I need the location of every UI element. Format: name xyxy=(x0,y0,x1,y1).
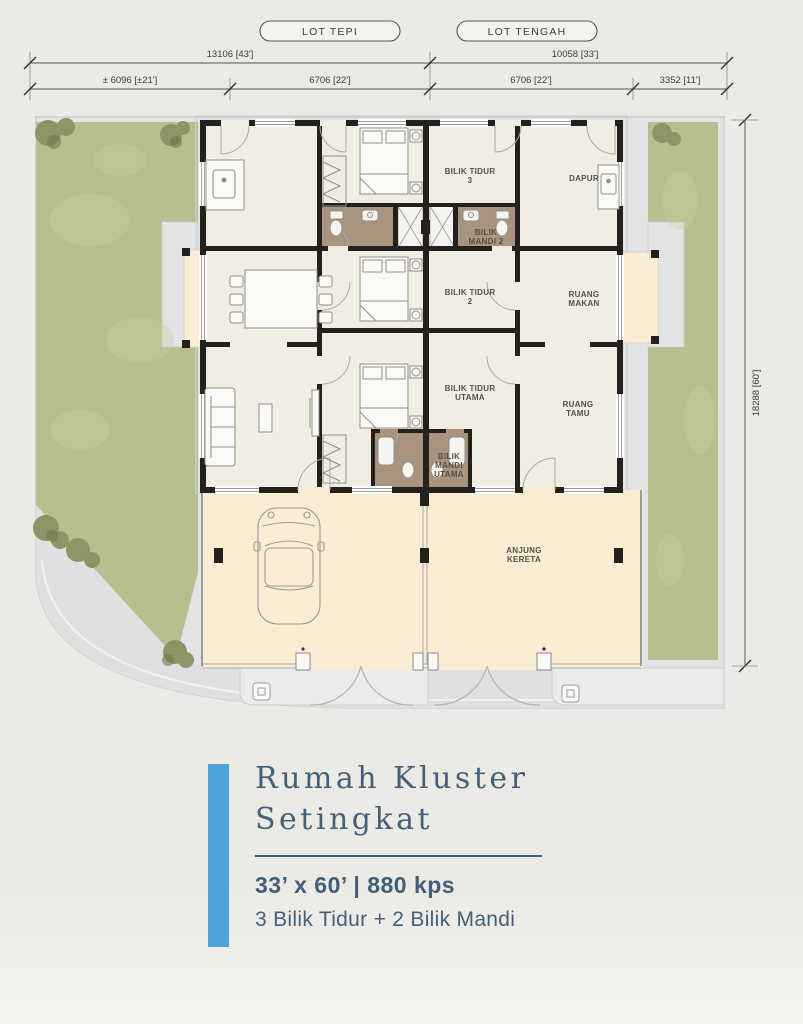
kitchen-counter xyxy=(206,160,244,210)
coffee-table xyxy=(259,404,272,432)
utility-meter-box-right xyxy=(562,685,579,702)
kitchen-counter xyxy=(598,165,619,209)
lot-tengah-label: LOT TENGAH xyxy=(488,26,567,38)
svg-text:UTAMA: UTAMA xyxy=(434,470,464,479)
plan-spec: 33’ x 60’ | 880 kps xyxy=(255,872,455,899)
patio-right xyxy=(620,250,659,344)
plan-title: Rumah Kluster Setingkat xyxy=(255,758,675,840)
svg-text:RUANG: RUANG xyxy=(563,400,594,409)
room-dapur: DAPUR xyxy=(569,174,599,183)
svg-text:MANDI: MANDI xyxy=(435,461,463,470)
air-well-right xyxy=(430,206,455,248)
accent-bar xyxy=(208,764,229,947)
svg-text:BILIK: BILIK xyxy=(475,228,497,237)
plan-features: 3 Bilik Tidur + 2 Bilik Mandi xyxy=(255,908,515,932)
dim-3352: 3352 [11'] xyxy=(660,75,701,86)
dimension-labels-top: 13106 [43'] 10058 [33'] ± 6096 [±21'] 67… xyxy=(103,49,701,86)
title-divider xyxy=(255,855,542,857)
svg-text:MAKAN: MAKAN xyxy=(568,299,599,308)
svg-text:BILIK: BILIK xyxy=(438,452,460,461)
dim-6096: ± 6096 [±21'] xyxy=(103,75,158,86)
room-ruang-makan: RUANG MAKAN xyxy=(568,290,599,308)
room-anjung-kereta: ANJUNG KERETA xyxy=(506,546,542,564)
room-bilik-mandi-utama: BILIK MANDI UTAMA xyxy=(434,452,464,479)
flyer-page: LOT TEPI LOT TENGAH 13106 [43'] 10058 [3… xyxy=(0,0,803,1024)
svg-text:BILIK TIDUR: BILIK TIDUR xyxy=(445,167,496,176)
svg-text:KERETA: KERETA xyxy=(507,555,541,564)
air-well-left xyxy=(398,206,423,248)
dim-6706-right: 6706 [22'] xyxy=(510,75,551,86)
lot-pill-tengah: LOT TENGAH xyxy=(457,21,597,41)
svg-text:ANJUNG: ANJUNG xyxy=(506,546,542,555)
room-ruang-tamu: RUANG TAMU xyxy=(563,400,594,418)
floor-plan-drawing: LOT TEPI LOT TENGAH 13106 [43'] 10058 [3… xyxy=(0,0,803,740)
svg-text:BILIK TIDUR: BILIK TIDUR xyxy=(445,288,496,297)
svg-text:TAMU: TAMU xyxy=(566,409,590,418)
svg-text:BILIK TIDUR: BILIK TIDUR xyxy=(445,384,496,393)
dimension-line-right: 18288 [60'] xyxy=(732,114,762,672)
svg-text:3: 3 xyxy=(468,176,473,185)
dim-10058: 10058 [33'] xyxy=(552,49,599,60)
sofa xyxy=(205,388,235,466)
dim-13106: 13106 [43'] xyxy=(207,49,254,60)
lot-pill-tepi: LOT TEPI xyxy=(260,21,400,41)
dim-6706-left: 6706 [22'] xyxy=(309,75,350,86)
plan-title-line1: Rumah Kluster xyxy=(255,761,528,796)
dim-18288: 18288 [60'] xyxy=(751,370,762,417)
plan-title-line2: Setingkat xyxy=(255,802,433,837)
svg-text:RUANG: RUANG xyxy=(569,290,600,299)
lot-tepi-label: LOT TEPI xyxy=(302,26,358,38)
svg-text:2: 2 xyxy=(468,297,473,306)
utility-meter-box-left xyxy=(253,683,270,700)
dining-table xyxy=(230,270,332,328)
svg-text:MANDI 2: MANDI 2 xyxy=(469,237,504,246)
svg-text:DAPUR: DAPUR xyxy=(569,174,599,183)
svg-text:UTAMA: UTAMA xyxy=(455,393,485,402)
